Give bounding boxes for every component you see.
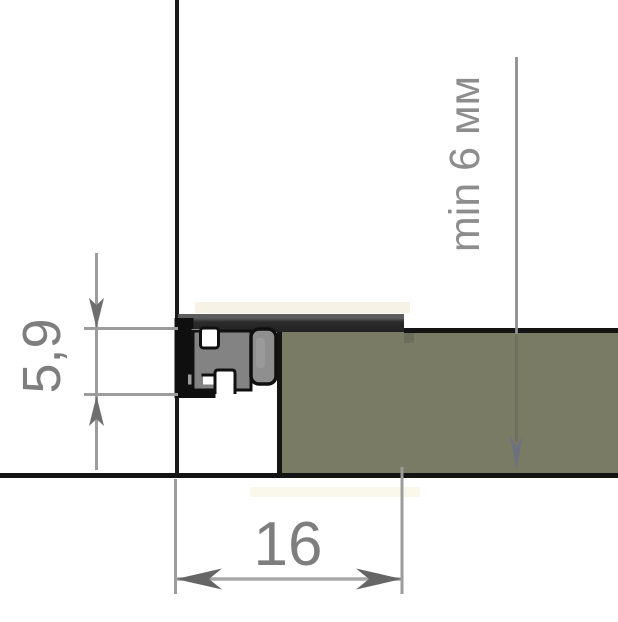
drawing-canvas: 5,9 16 min 6 мм [0, 0, 618, 622]
dimension-profile-height: 5,9 [12, 253, 178, 470]
dimension-groove-width: 16 [176, 467, 403, 594]
dim-label-profile-height: 5,9 [12, 318, 72, 393]
dim-label-groove-width: 16 [254, 510, 323, 579]
dimension-overlay: 5,9 16 min 6 мм [0, 0, 618, 622]
annotation-label-panel-thickness: min 6 мм [441, 76, 489, 252]
annotation-panel-thickness: min 6 мм [441, 57, 523, 470]
